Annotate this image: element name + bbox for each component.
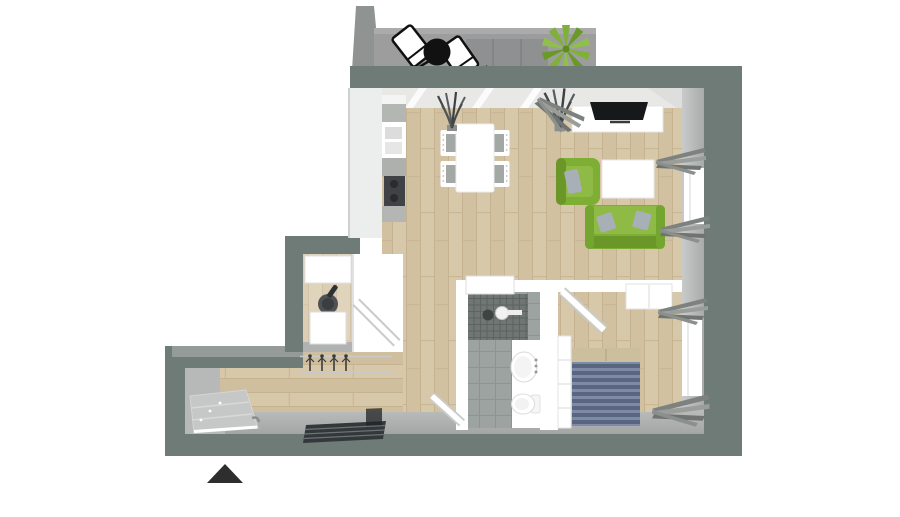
- double-bed: [572, 348, 640, 426]
- living-window: [684, 168, 704, 224]
- corridor-floor: [403, 280, 458, 412]
- bedside-shelf: [558, 336, 571, 428]
- dining-chair: [441, 130, 458, 156]
- stair-dot: [209, 410, 212, 413]
- floor-plan-svg: [0, 0, 900, 517]
- stair-dot: [200, 419, 203, 422]
- sofa-armrest: [656, 205, 665, 249]
- storage-top-wall: [285, 236, 360, 254]
- bathroom-wall-cabinet: [466, 276, 514, 294]
- shower-arm: [508, 310, 522, 315]
- sofa-backrest: [588, 236, 662, 248]
- bed-duvet: [572, 362, 640, 426]
- basin-inner: [514, 356, 532, 378]
- exterior-wall-bottom: [165, 434, 742, 456]
- kitchen-counter: [382, 104, 406, 122]
- toilet: [512, 394, 541, 414]
- floor-plan-image: [0, 0, 900, 517]
- green-armchair: [556, 158, 600, 205]
- doormat-end: [366, 408, 382, 426]
- exterior-wall-top: [350, 66, 742, 88]
- armchair-back: [556, 158, 566, 205]
- faucet-dot: [535, 359, 538, 362]
- outdoor-couch: [466, 34, 548, 66]
- faucet-dot: [535, 365, 538, 368]
- hallway-top-wall-face: [172, 346, 303, 357]
- floor-drain: [483, 310, 494, 321]
- kitchen-left-wall: [348, 88, 382, 238]
- storage-cabinet: [305, 256, 351, 283]
- washbasin: [511, 352, 538, 382]
- bedroom-window: [682, 318, 702, 396]
- flatscreen-tv: [590, 102, 648, 120]
- kitchen-counter: [382, 158, 406, 176]
- dining-table: [456, 124, 494, 192]
- plant-center: [563, 46, 570, 53]
- couch-back: [466, 34, 548, 39]
- sofa-armrest: [585, 205, 594, 249]
- washing-machine: [310, 312, 346, 344]
- shower-fixture: [496, 307, 509, 320]
- sink-basin: [385, 142, 402, 154]
- sink-basin: [385, 127, 402, 139]
- kitchen-counter: [382, 206, 406, 222]
- dining-chair: [441, 161, 458, 187]
- dining-chair: [493, 130, 510, 156]
- toilet-seat: [515, 398, 529, 410]
- appliance-inner: [322, 298, 334, 310]
- green-sofa: [585, 205, 665, 249]
- faucet-dot: [535, 371, 538, 374]
- round-black-table: [424, 39, 451, 66]
- burner: [390, 180, 398, 188]
- bathroom-right-wall: [540, 280, 558, 430]
- kitchenette: [382, 95, 406, 222]
- stair-dot: [219, 402, 222, 405]
- exterior-wall-right: [704, 66, 742, 456]
- bathroom-left-wall: [456, 280, 468, 430]
- dining-chair: [493, 161, 510, 187]
- coffee-table: [602, 160, 654, 198]
- burner: [390, 194, 398, 202]
